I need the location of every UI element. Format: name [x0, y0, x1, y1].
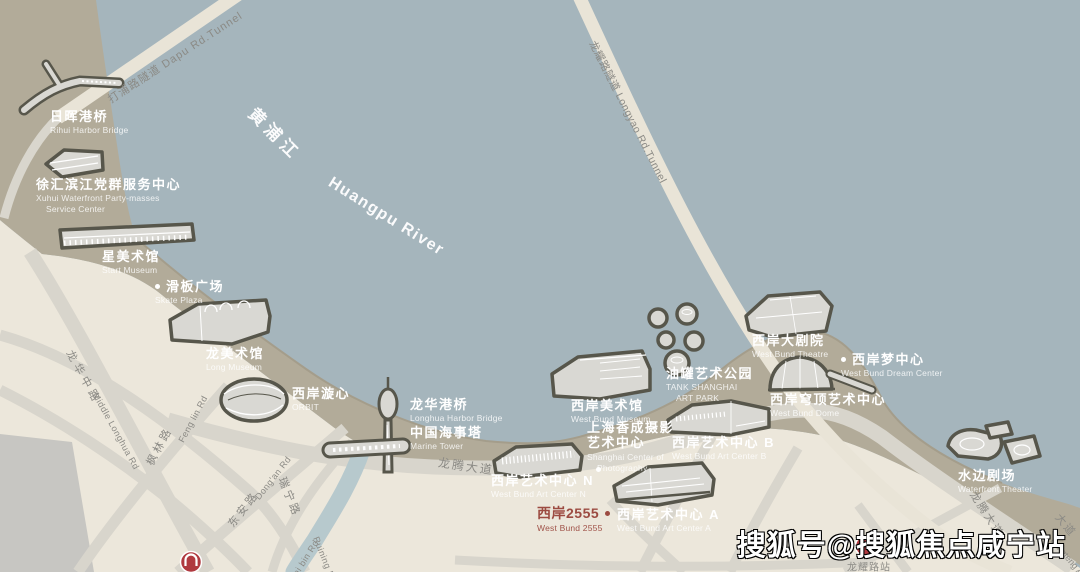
landmark-label-start-museum: 星美术馆Start Museum: [102, 249, 160, 275]
landmark-name-zh: 水边剧场: [958, 468, 1016, 483]
landmark-name-en: West Bund Art Center A: [617, 523, 720, 533]
west-bund-area-map: 日晖港桥Rihui Harbor Bridge徐汇滨江党群服务中心Xuhui W…: [0, 0, 1080, 572]
landmark-name-zh: 西岸艺术中心 B: [672, 435, 775, 450]
landmark-label-west-bund-dome: 西岸穹顶艺术中心West Bund Dome: [770, 392, 886, 418]
landmark-label-shanghai-center-of-photography: 上海香成摄影艺术中心Shanghai Center ofPhotography: [587, 420, 674, 473]
road-label-middle-longhua-rd-en: Middle Longhua Rd: [91, 391, 142, 472]
landmark-label-marine-tower: 中国海事塔Marine Tower: [410, 425, 483, 451]
road-label-longteng-ave: 龙腾大道: [437, 454, 495, 479]
landmark-name-zh: 西岸美术馆: [571, 398, 644, 413]
sohu-watermark: 搜狐号@搜狐焦点咸宁站: [737, 522, 1066, 564]
landmark-name-en: West Bund Dream Center: [841, 368, 943, 378]
landmark-label-skate-plaza: 滑板广场Skate Plaza: [155, 279, 224, 305]
landmark-label-rihui-harbor-bridge: 日晖港桥Rihui Harbor Bridge: [50, 109, 128, 135]
landmark-label-west-bund-theatre: 西岸大剧院West Bund Theatre: [752, 333, 828, 359]
landmark-label-west-bund-art-center-a: 西岸艺术中心 AWest Bund Art Center A: [617, 507, 720, 533]
landmark-name-en: West Bund Art Center N: [491, 489, 594, 499]
landmark-name-en: TANK SHANGHAI: [666, 382, 753, 392]
landmark-name-zh: 西岸2555: [537, 505, 599, 521]
river-label-huangpu-river-en: Huangpu River: [325, 174, 448, 260]
landmark-name-en: Start Museum: [102, 265, 160, 275]
river-label-huangpu-river-zh: 黄浦江: [244, 101, 308, 165]
road-label-dapu-rd-tunnel: 打浦路隧道 Dapu Rd.Tunnel: [104, 7, 245, 106]
landmark-name-zh: 日晖港桥: [50, 109, 108, 124]
landmark-name-en: West Bund Theatre: [752, 349, 828, 359]
landmark-name-en: Xuhui Waterfront Party-masses: [36, 193, 181, 203]
landmark-name-en: ART PARK: [666, 393, 753, 403]
landmark-label-waterfront-theater: 水边剧场Waterfront Theater: [958, 468, 1032, 494]
landmark-name-zh: 西岸大剧院: [752, 333, 825, 348]
landmark-name-zh: 中国海事塔: [410, 425, 483, 440]
landmark-name-en: Service Center: [36, 204, 181, 214]
landmark-name-zh: 星美术馆: [102, 249, 160, 264]
landmark-name-zh: 徐汇滨江党群服务中心: [36, 177, 181, 192]
landmark-name-en: Shanghai Center of: [587, 452, 674, 462]
landmark-name-zh: 龙华港桥: [410, 397, 468, 412]
landmark-name-zh: 西岸漩心: [292, 386, 350, 401]
landmark-label-xuhui-service-center: 徐汇滨江党群服务中心Xuhui Waterfront Party-massesS…: [36, 177, 181, 214]
landmark-name-zh: 滑板广场: [166, 279, 224, 294]
landmark-name-zh: 西岸穹顶艺术中心: [770, 392, 886, 407]
landmark-name-en: West Bund Dome: [770, 408, 886, 418]
landmark-label-west-bund-art-center-b: 西岸艺术中心 BWest Bund Art Center B: [672, 435, 775, 461]
landmark-name-en: West Bund 2555: [537, 523, 610, 533]
landmark-label-tank-art-park: 油罐艺术公园TANK SHANGHAIART PARK: [666, 366, 753, 403]
landmark-name-en: Waterfront Theater: [958, 484, 1032, 494]
landmark-name-zh: 西岸艺术中心 A: [617, 507, 720, 522]
road-label-fenglin-rd: 枫林路: [142, 424, 176, 469]
landmark-label-west-bund-art-center-n: 西岸艺术中心 NWest Bund Art Center N: [491, 473, 594, 499]
landmark-name-en: Rihui Harbor Bridge: [50, 125, 128, 135]
road-label-taibin-rd-en: tai bin Rd: [289, 538, 320, 572]
landmark-label-west-bund-dream-center: 西岸梦中心West Bund Dream Center: [841, 352, 943, 378]
landmark-name-zh: 艺术中心: [587, 435, 674, 450]
landmark-name-zh: 油罐艺术公园: [666, 366, 753, 381]
poi-dot: [596, 467, 601, 472]
landmark-name-en: Longhua Harbor Bridge: [410, 413, 503, 423]
landmark-label-longhua-harbor-bridge: 龙华港桥Longhua Harbor Bridge: [410, 397, 503, 423]
landmark-label-long-museum: 龙美术馆Long Museum: [206, 346, 264, 372]
landmark-name-zh: 西岸艺术中心 N: [491, 473, 594, 488]
landmark-name-zh: 西岸梦中心: [852, 352, 925, 367]
map-labels: 日晖港桥Rihui Harbor Bridge徐汇滨江党群服务中心Xuhui W…: [0, 0, 1080, 572]
landmark-name-en: Skate Plaza: [155, 295, 224, 305]
landmark-name-zh: 上海香成摄影: [587, 420, 674, 435]
landmark-name-en: Marine Tower: [410, 441, 483, 451]
landmark-name-en: ORBIT: [292, 402, 350, 412]
landmark-name-en: West Bund Art Center B: [672, 451, 775, 461]
landmark-name-en: Long Museum: [206, 362, 264, 372]
road-label-longyao-rd-tunnel: 龙耀路隧道 Longyao Rd.Tunnel: [585, 38, 670, 186]
landmark-label-orbit: 西岸漩心ORBIT: [292, 386, 350, 412]
poi-dot: [155, 284, 160, 289]
landmark-name-zh: 龙美术馆: [206, 346, 264, 361]
landmark-label-west-bund-2555: 西岸2555West Bund 2555: [537, 505, 610, 533]
poi-dot: [841, 357, 846, 362]
road-label-fenglin-rd-en: Feng lin Rd: [176, 394, 209, 444]
road-label-ruining-rd: 瑞宁路: [275, 475, 306, 520]
poi-dot: [605, 511, 610, 516]
